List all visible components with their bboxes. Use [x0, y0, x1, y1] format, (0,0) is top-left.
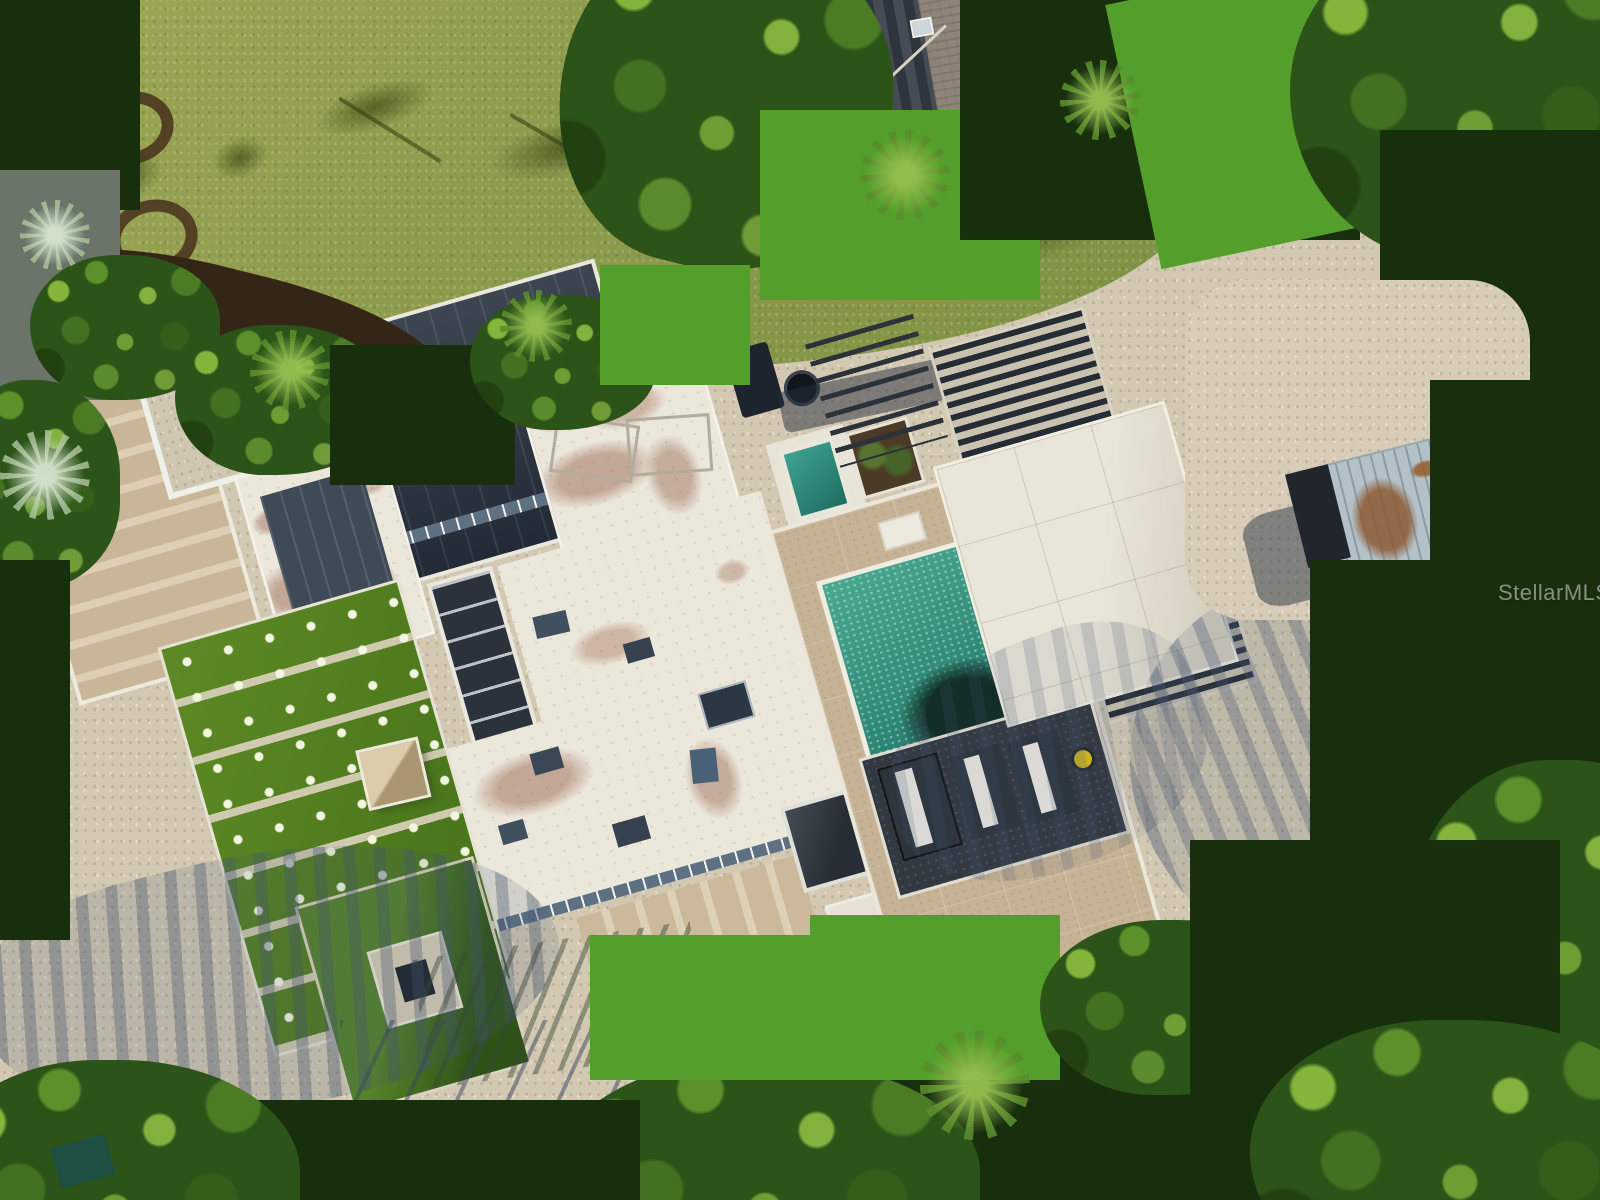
palm-top-icon — [1060, 60, 1140, 140]
shrub-row — [590, 935, 820, 1080]
silver-palm-icon — [0, 430, 90, 520]
watermark: StellarMLS — [1498, 580, 1600, 606]
palm-top-icon — [920, 1030, 1030, 1140]
hedge — [600, 265, 750, 385]
palm-top-icon — [500, 290, 572, 362]
roof-diamond — [626, 413, 714, 477]
tree-canopy — [0, 560, 70, 940]
silver-palm-icon — [20, 200, 90, 270]
palm-top-icon — [860, 130, 950, 220]
aerial-photo-scene: StellarMLS — [0, 0, 1600, 1200]
palm-top-icon — [250, 330, 330, 410]
roof-chair — [690, 747, 719, 784]
